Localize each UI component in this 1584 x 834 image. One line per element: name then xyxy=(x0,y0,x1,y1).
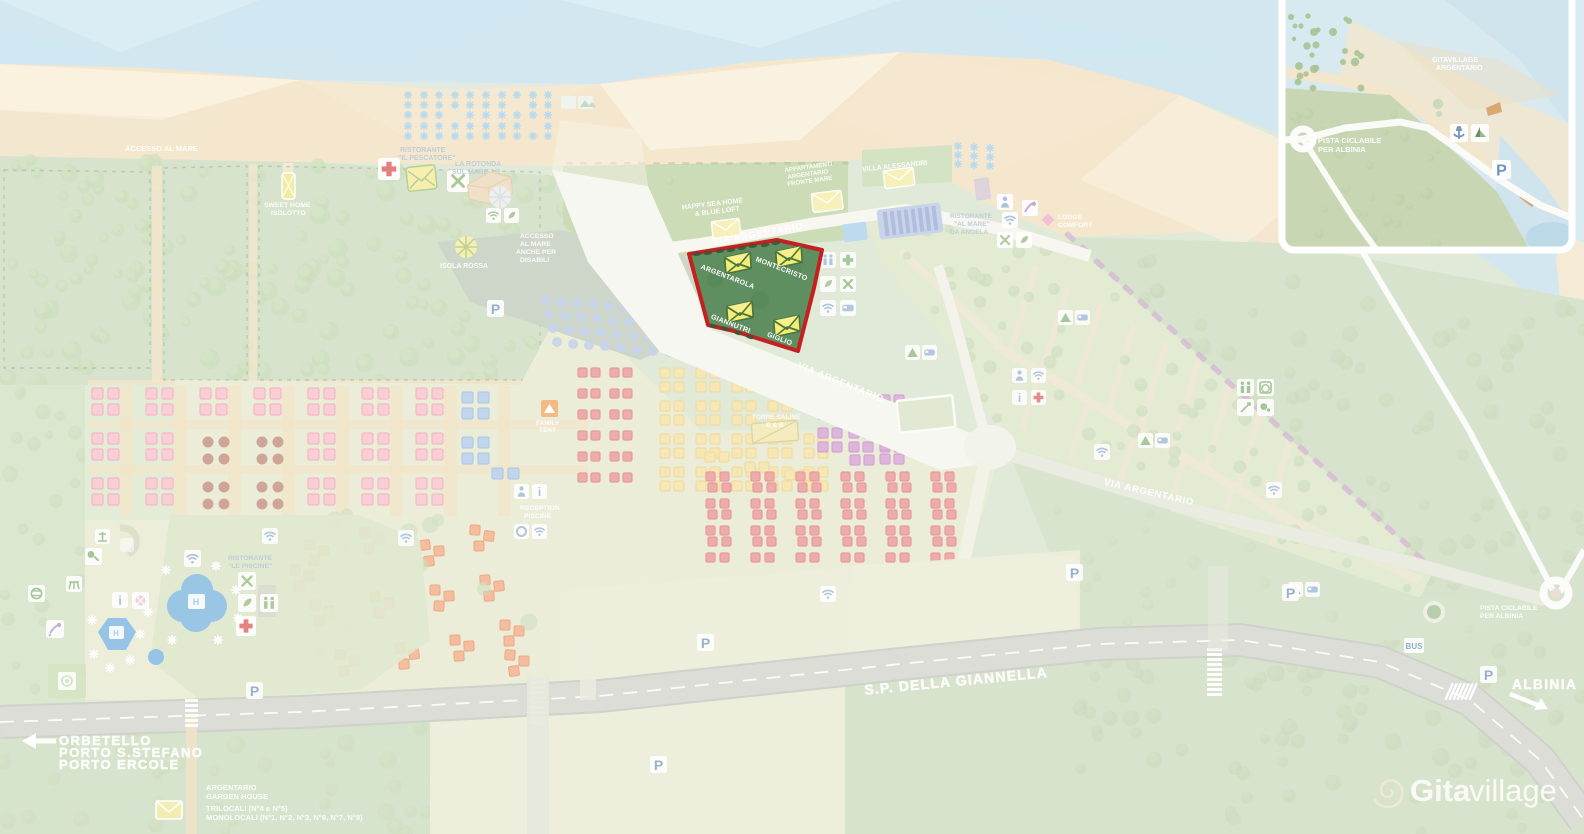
svg-text:ARGENTARIO: ARGENTARIO xyxy=(1436,65,1483,72)
svg-text:ALBINIA: ALBINIA xyxy=(1512,677,1577,692)
svg-text:P: P xyxy=(1496,163,1507,180)
svg-text:Gita: Gita xyxy=(1410,773,1471,808)
svg-text:TRILOCALI (N°4 e N°5): TRILOCALI (N°4 e N°5) xyxy=(206,804,288,813)
svg-text:GARDEN HOUSE: GARDEN HOUSE xyxy=(206,792,268,801)
svg-text:PORTO ERCOLE: PORTO ERCOLE xyxy=(59,757,180,772)
svg-text:ARGENTARIO: ARGENTARIO xyxy=(206,783,257,792)
svg-text:PISTA CICLABILE: PISTA CICLABILE xyxy=(1318,136,1381,145)
svg-text:MONOLOCALI (N°1, N°2, N°3, N°6: MONOLOCALI (N°1, N°2, N°3, N°6, N°7, N°8… xyxy=(206,813,363,822)
svg-text:village: village xyxy=(1469,773,1557,808)
svg-text:PER ALBINIA: PER ALBINIA xyxy=(1480,613,1523,620)
svg-text:PER ALBINIA: PER ALBINIA xyxy=(1318,145,1366,154)
svg-text:PISTA CICLABILE: PISTA CICLABILE xyxy=(1480,605,1538,612)
svg-text:GITAVILLAGE: GITAVILLAGE xyxy=(1432,57,1478,64)
